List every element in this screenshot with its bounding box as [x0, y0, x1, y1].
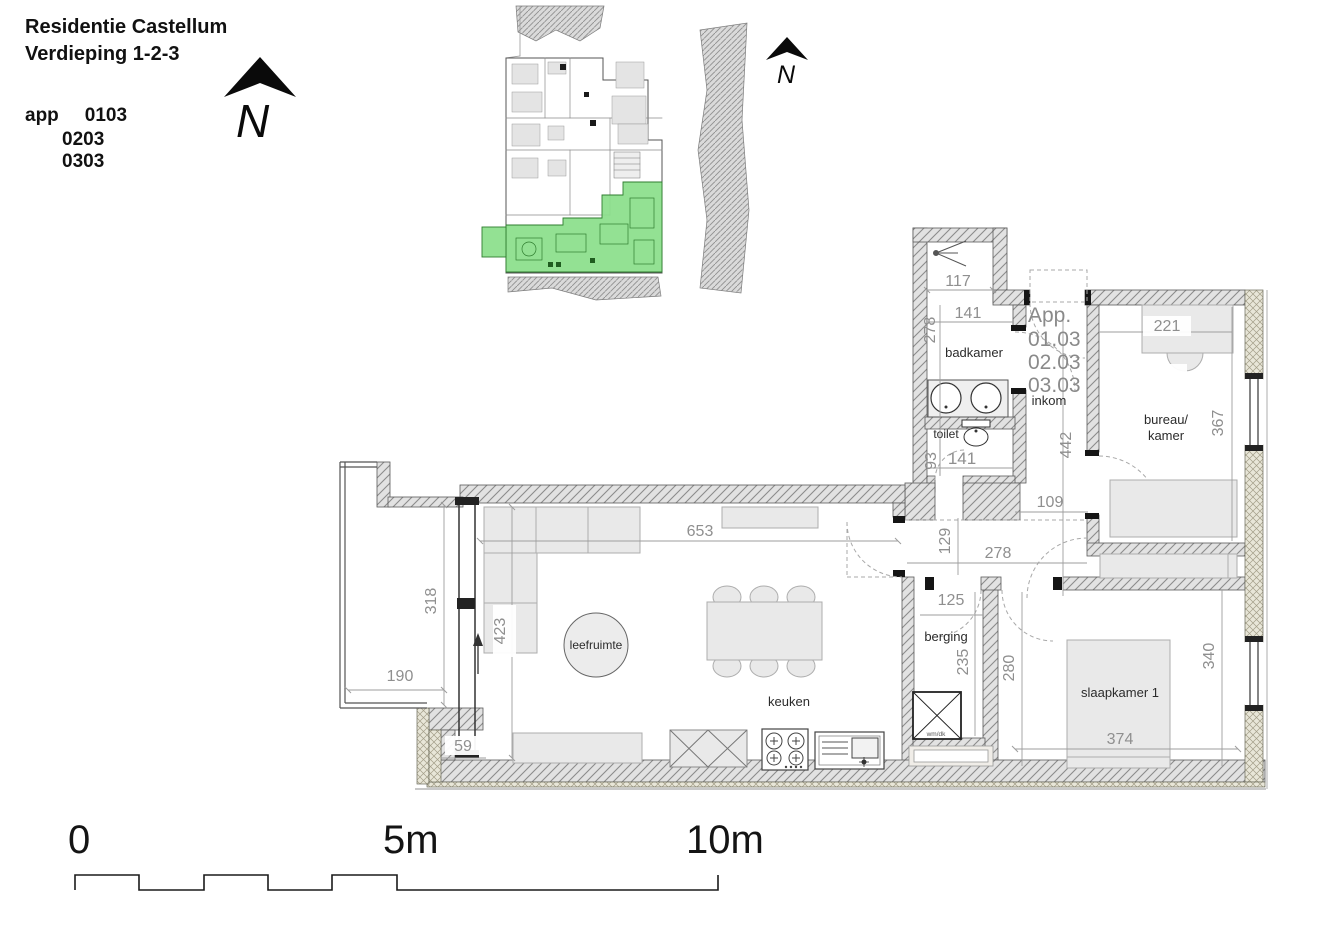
window-slaapkamer [1245, 642, 1263, 705]
scale-bar: 0 5m 10m [68, 818, 764, 890]
washing-machine: wm/dk [913, 692, 961, 739]
dim-bath-width: 141 [955, 305, 982, 322]
dim-toilet-height: 93 [923, 452, 940, 470]
kitchen-cabinet [513, 733, 642, 763]
label-slaapkamer: slaapkamer 1 [1081, 685, 1159, 700]
dim-shower-width: 117 [945, 273, 971, 290]
sofa-top [484, 507, 640, 553]
dim-terrace-height: 318 [423, 588, 440, 615]
shower-head [934, 241, 967, 266]
dim-sofa-height: 423 [492, 618, 509, 645]
dim-corner: 59 [454, 738, 472, 755]
label-toilet: toilet [933, 427, 959, 441]
north-label-minimap: N [777, 61, 796, 89]
app-ref-2: 02.03 [1028, 351, 1081, 374]
dim-inkom-height: 442 [1058, 432, 1075, 459]
scale-ten: 10m [686, 818, 764, 862]
app-ref-prefix: App. [1028, 304, 1071, 327]
bed-bureau [1110, 480, 1237, 537]
dim-hall-height: 129 [937, 528, 954, 555]
label-bureau-1: bureau/ [1144, 412, 1188, 427]
terrain-patch-bottom [508, 277, 661, 300]
apartment-reference: App. 01.03 02.03 03.03 [1028, 304, 1081, 397]
scale-five: 5m [383, 818, 439, 862]
north-arrow-minimap: N [766, 37, 808, 89]
minimap-stairwell [614, 152, 640, 178]
washer-label: wm/dk [926, 731, 947, 738]
dim-bedroom-width: 374 [1107, 731, 1134, 748]
dim-berging-width: 125 [938, 592, 965, 609]
wc-tank [962, 420, 990, 427]
app-ref-3: 03.03 [1028, 374, 1081, 397]
label-badkamer: badkamer [945, 345, 1003, 360]
kitchen-tall-cabinets [670, 730, 747, 767]
sideboard [722, 507, 818, 528]
label-berging: berging [924, 629, 967, 644]
north-label-main: N [236, 95, 270, 147]
dim-toilet-width: 141 [948, 449, 976, 468]
floorplan-drawing: N N [0, 0, 1327, 936]
label-leefruimte: leefruimte [570, 638, 623, 652]
dim-berging-height: 235 [955, 649, 972, 676]
window-sill-niche [909, 746, 993, 766]
dim-passage-height: 280 [1001, 655, 1018, 682]
dim-living-width: 653 [687, 523, 714, 540]
window-bureau [1245, 379, 1263, 445]
dim-bureau-height: 367 [1210, 410, 1227, 437]
dim-desk-width: 221 [1154, 318, 1181, 335]
kitchen-sink [815, 732, 884, 769]
hall-closet [1100, 554, 1237, 578]
dim-hall-width2: 278 [985, 545, 1012, 562]
dim-bedroom-height: 340 [1201, 643, 1218, 670]
label-keuken: keuken [768, 694, 810, 709]
app-ref-1: 01.03 [1028, 328, 1081, 351]
overview-minimap [482, 6, 749, 300]
north-arrow-main: N [224, 57, 296, 147]
terrain-patch-top [516, 6, 604, 41]
dining-table [707, 602, 822, 660]
dim-terrace-width: 190 [387, 668, 414, 685]
dim-bath-height: 278 [922, 317, 939, 344]
scale-zero: 0 [68, 818, 90, 862]
terrain-patch-right [698, 23, 749, 293]
stove [762, 729, 808, 770]
dim-hall-width: 109 [1037, 494, 1064, 511]
label-bureau-2: kamer [1148, 428, 1185, 443]
floorplan-canvas: Residentie Castellum Verdieping 1-2-3 ap… [0, 0, 1327, 936]
